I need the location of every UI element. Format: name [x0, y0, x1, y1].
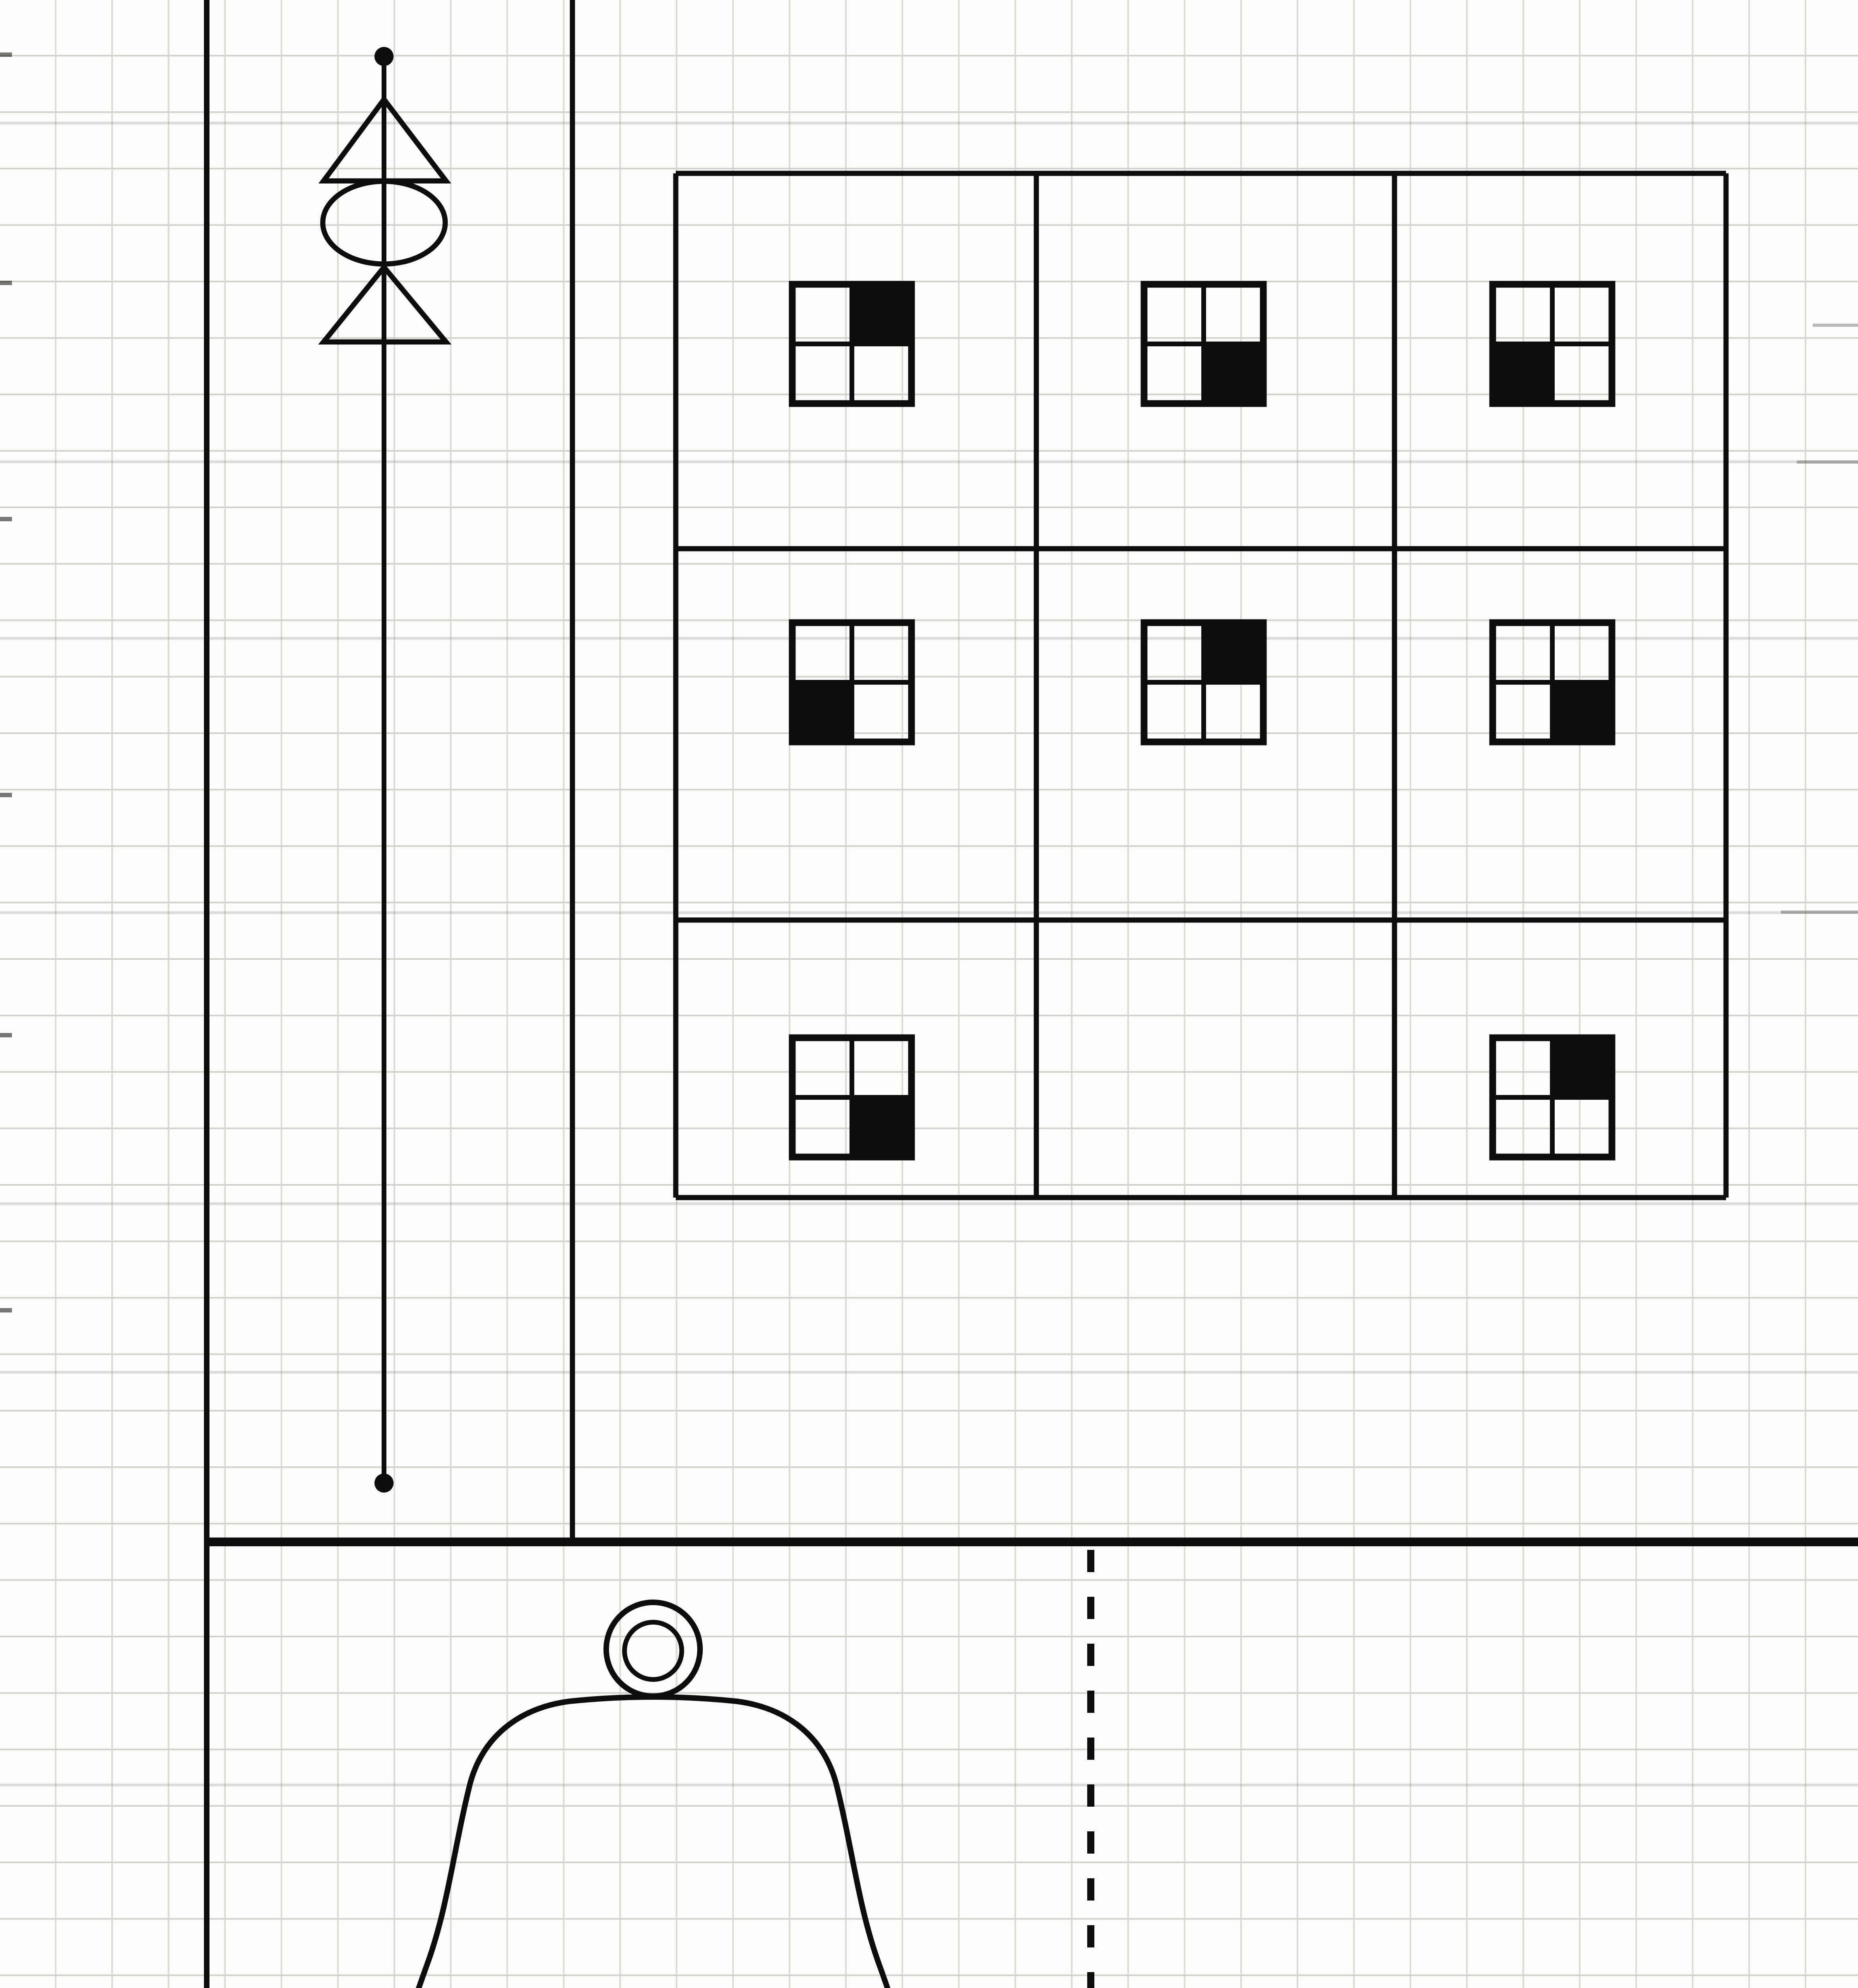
filled-quadrant	[1204, 623, 1263, 682]
filled-quadrant	[1204, 344, 1263, 404]
bell-body	[378, 1697, 928, 1988]
filled-quadrant	[1493, 344, 1552, 404]
puzzle-cell-1-1	[1036, 549, 1394, 920]
puzzle-cells	[676, 173, 1726, 1198]
filled-quadrant	[852, 1097, 912, 1157]
filled-quadrant	[1552, 682, 1612, 742]
filled-quadrant	[792, 682, 852, 742]
ink-layer: 4	[103, 0, 1858, 1988]
worksheet-page: 4	[0, 0, 1858, 1988]
bell-ring-outer-icon	[606, 1602, 700, 1696]
puzzle-cell-0-0	[676, 173, 1036, 549]
puzzle-grid	[676, 173, 1726, 1198]
bell-ring-inner-icon	[625, 1622, 682, 1679]
bell-drawing	[378, 1602, 928, 1988]
filled-quadrant	[1552, 1038, 1612, 1097]
sequence-pattern	[323, 47, 446, 1493]
page-artwork: 4	[0, 0, 1858, 1988]
pattern-end-dot-icon	[374, 1474, 394, 1493]
filled-quadrant	[852, 284, 912, 344]
answer-cell-empty[interactable]	[1036, 920, 1394, 1198]
puzzle-cell-1-0	[676, 549, 1036, 920]
puzzle-cell-0-2	[1394, 173, 1726, 549]
